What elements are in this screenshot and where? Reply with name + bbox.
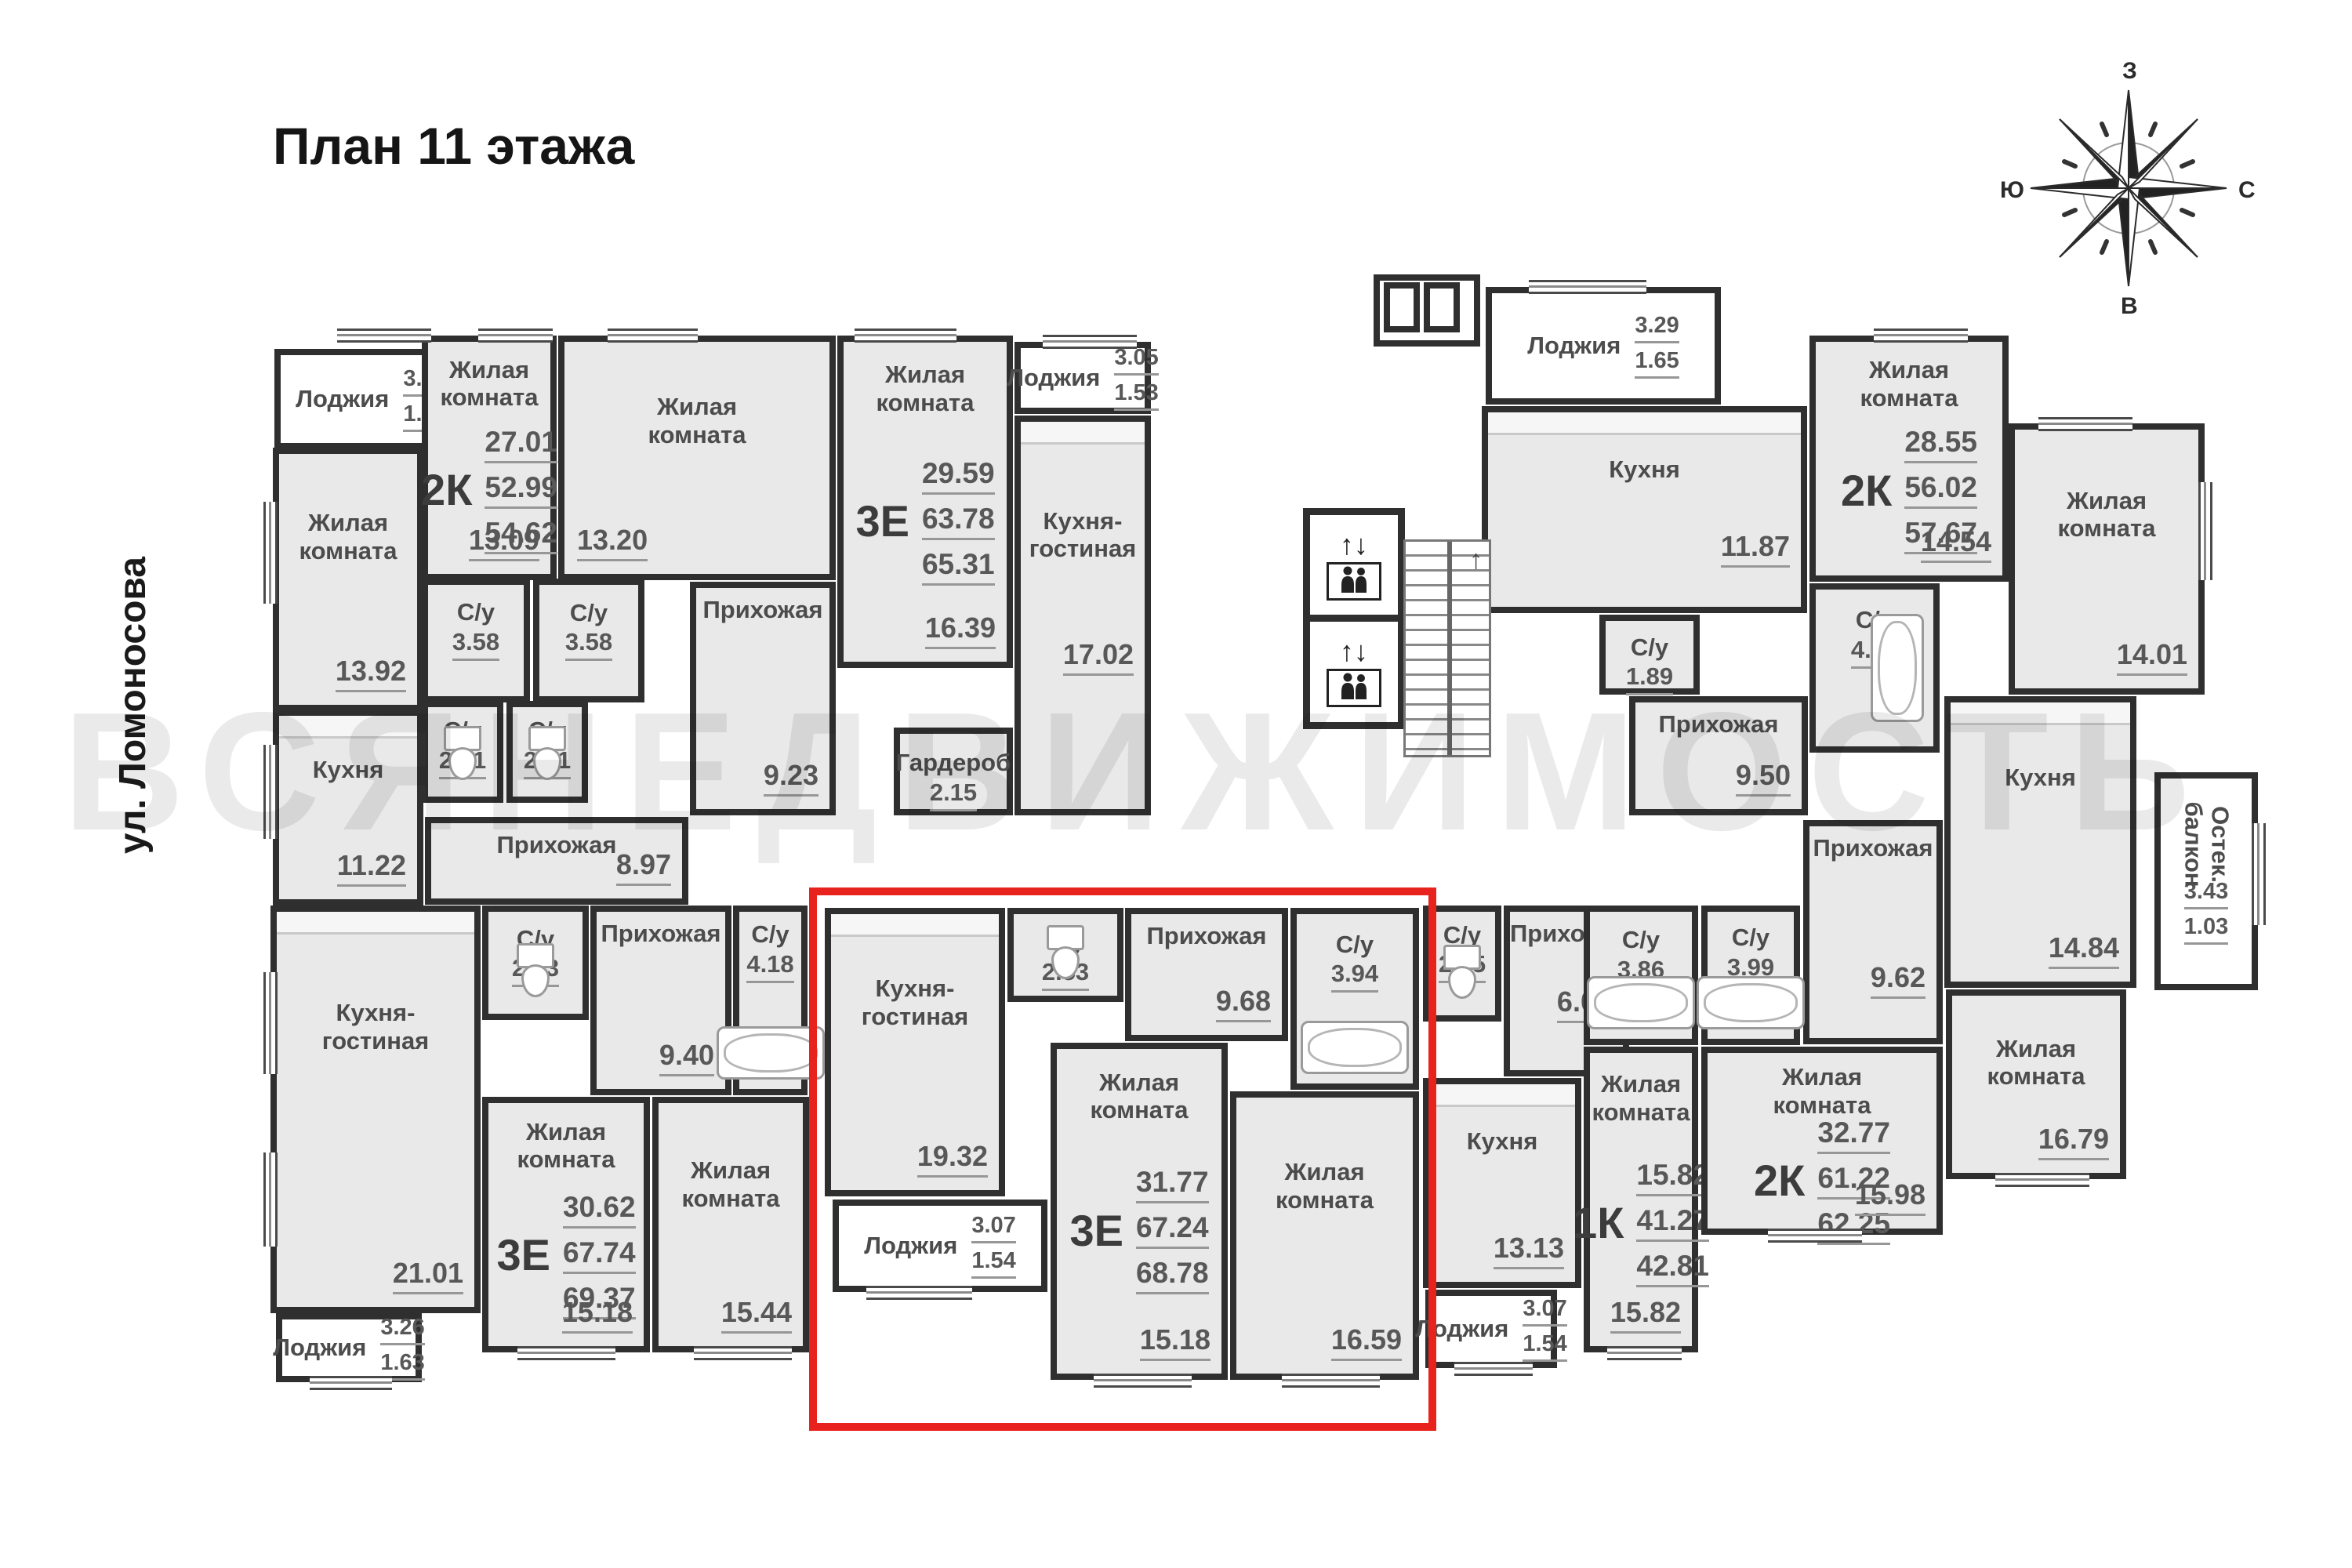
room-15-98-name: Жилая комната [1708,1063,1936,1119]
room-15-18-a-apartment-area-2: 67.74 [563,1236,636,1274]
kitchen-11-87-name: Кухня [1488,456,1801,484]
loggia-top-left-name: Лоджия [296,385,389,413]
loggia-3-29-label: Лоджия3.291.65 [1492,293,1715,398]
window-icon-h15 [1607,1346,1682,1360]
kitchen-11-87-area-value: 11.87 [1721,530,1790,568]
window-icon-h10 [694,1346,792,1360]
room-14-01-name: Жилая комната [2015,487,2198,543]
room-15-82-name: Жилая комната [1590,1070,1692,1126]
room-15-98-area-value: 15.98 [1855,1178,1926,1216]
room-15-82-area-value: 15.82 [1610,1296,1681,1334]
room-14-54: Жилая комната2К28.5556.0257.6714.54 [1809,336,2009,582]
su-3-99-bathtub-icon [1697,976,1805,1029]
su-1-89: С/у1.89 [1599,615,1700,695]
loggia-3-05-value-2: 1.53 [1114,380,1158,411]
su-2-53-a: С/у2.53 [482,906,589,1020]
kitchen-13-13-area-value: 13.13 [1494,1232,1564,1269]
compass-right-label: С [2238,177,2256,204]
room-16-39-name: Жилая комната [844,361,1007,416]
room-15-18-a-apartment-area-1: 30.62 [563,1191,636,1229]
hall-8-97: Прихожая8.97 [425,817,688,905]
kitchen-11-22: Кухня11.22 [273,710,423,906]
garderob-2-15: Гардероб2.15 [894,728,1013,815]
room-15-82-apartment-area-1: 15.82 [1636,1159,1709,1196]
room-16-79-area-value: 16.79 [2038,1123,2109,1160]
vent-2 [1424,282,1460,332]
balcony-ostek-name: Остек. балкон [2180,802,2233,887]
su-3-86-bathtub-icon [1587,976,1695,1029]
hall-9-40: Прихожая9.40 [590,906,731,1095]
elevator-2-people-icon [1327,669,1381,707]
su-2-21-b: С/у2.21 [506,701,588,803]
room-14-54-apartment-area-2: 56.02 [1904,471,1977,509]
room-15-44: Жилая комната15.44 [652,1097,809,1352]
su-3-58-b: С/у3.58 [533,579,644,702]
su-4-21: С/у4.21 [1809,583,1940,753]
su-2-21-b-toilet-icon [528,726,566,751]
kitchen-living-17-02-name: Кухня- гостиная [1021,507,1145,563]
window-icon-h1 [478,328,553,343]
room-14-54-name: Жилая комната [1816,356,2002,412]
kitchen-11-87: Кухня11.87 [1482,406,1807,613]
window-icon-h8 [310,1376,392,1390]
hall-9-23: Прихожая9.23 [690,582,836,815]
su-2-45-toilet-icon [1443,945,1481,970]
room-14-54-area-value: 14.54 [1921,525,1991,563]
loggia-3-05: Лоджия3.051.53 [1014,342,1151,414]
kitchen-14-84-name: Кухня [1951,764,2130,792]
window-icon-h7 [2038,417,2132,431]
garderob-2-15-area-value: 2.15 [930,779,977,811]
garderob-2-15-name: Гардероб [896,749,1011,777]
room-13-09-apartment-type: 2К [421,464,472,515]
hall-9-62-area-value: 9.62 [1871,961,1926,999]
room-15-98-apartment-type: 2К [1754,1155,1805,1206]
room-16-39: Жилая комната3Е29.5963.7865.3116.39 [837,336,1013,668]
room-16-39-apartment-area-1: 29.59 [922,457,995,495]
hall-8-97-area-value: 8.97 [616,848,671,886]
room-16-39-apartment-summary: 3Е29.5963.7865.31 [844,457,1007,586]
room-13-09-apartment-area-2: 52.99 [485,471,557,509]
room-13-20-name: Жилая комната [564,393,829,448]
loggia-3-07-1k-value-1: 3.07 [1523,1296,1566,1327]
room-14-01: Жилая комната14.01 [2009,423,2205,695]
room-15-98: Жилая комната2К32.7761.2262.2515.98 [1701,1047,1943,1235]
room-15-82-apartment-area-3: 42.81 [1636,1250,1709,1287]
hall-9-23-name: Прихожая [696,596,829,624]
loggia-3-05-label: Лоджия3.051.53 [1021,348,1145,408]
kitchen-13-13-kitchen-counter-icon [1429,1084,1575,1107]
kitchen-13-13-name: Кухня [1429,1127,1575,1156]
su-2-53-a-toilet-icon [517,943,554,968]
page-title: План 11 этажа [273,116,634,176]
compass-rose-icon: З С В Ю [2003,63,2254,314]
hall-9-40-area-value: 9.40 [659,1039,714,1076]
balcony-ostek-label: Остек. балкон3.431.03 [2161,779,2252,984]
kitchen-13-13: Кухня13.13 [1423,1078,1581,1288]
room-14-54-apartment-type: 2К [1841,465,1892,516]
elevator-1-people-icon [1327,562,1381,601]
hall-9-62-name: Прихожая [1809,834,1936,862]
compass-top-label: З [2122,58,2137,85]
loggia-3-05-value-1: 3.05 [1114,345,1158,376]
kitchen-14-84: Кухня14.84 [1944,696,2136,988]
room-13-20: Жилая комната13.20 [558,336,836,580]
hall-9-50-name: Прихожая [1635,710,1802,739]
su-4-18: С/у4.18 [733,906,808,1095]
elevator-1-arrows-icon: ↑↓ [1340,531,1368,559]
hall-9-50: Прихожая9.50 [1629,696,1808,815]
su-1-89-name: С/у [1631,633,1668,662]
room-13-20-area-value: 13.20 [577,524,648,561]
loggia-bottom-left-label: Лоджия3.261.63 [282,1319,416,1376]
room-16-39-area-value: 16.39 [925,612,996,649]
window-icon-h3 [855,328,956,343]
street-label: ул. Ломоносова [111,557,154,854]
kitchen-11-22-area-value: 11.22 [337,849,406,887]
su-2-21-a: С/у2.21 [422,701,503,803]
kitchen-living-17-02-kitchen-counter-icon [1021,422,1145,445]
kitchen-11-87-kitchen-counter-icon [1488,412,1801,435]
vent-1 [1384,282,1420,332]
su-3-58-b-name: С/у [570,599,608,627]
room-15-82-apartment-summary: 1К15.8241.2742.81 [1590,1159,1692,1287]
window-icon-h6 [1874,328,1968,343]
room-16-39-apartment-area-3: 65.31 [922,548,995,586]
staircase [1403,539,1491,757]
room-13-92-name: Жилая комната [279,509,417,564]
compass-star-icon [2003,63,2254,314]
elevator-2-arrows-icon: ↑↓ [1340,637,1368,666]
su-3-58-a-name: С/у [457,598,495,626]
room-15-82-apartment-area-2: 41.27 [1636,1204,1709,1242]
floor-plan: План 11 этажа ул. Ломоносова ВСЯНЕДВИЖИМ… [0,0,2352,1568]
room-16-39-apartment-areas: 29.5963.7865.31 [922,457,995,586]
room-15-44-name: Жилая комната [659,1156,803,1212]
elevator-1-icon: ↑↓ [1303,508,1405,622]
kitchen-11-22-kitchen-counter-icon [279,716,417,739]
su-3-58-b-area-value: 3.58 [565,628,612,661]
su-3-99-name: С/у [1732,924,1769,952]
su-4-18-bathtub-icon [717,1026,825,1080]
su-3-58-a: С/у3.58 [422,579,530,702]
room-15-18-a: Жилая комната3Е30.6267.7469.3715.18 [482,1097,650,1352]
kitchen-living-21-01: Кухня- гостиная21.01 [270,906,481,1313]
room-15-82: Жилая комната1К15.8241.2742.8115.82 [1584,1047,1698,1352]
room-14-54-apartment-area-1: 28.55 [1904,426,1977,463]
window-icon-h0 [337,328,431,343]
window-icon-v0 [263,502,278,604]
room-16-79-name: Жилая комната [1952,1035,2120,1091]
window-icon-h9 [517,1346,615,1360]
kitchen-living-17-02: Кухня- гостиная17.02 [1014,416,1151,815]
su-3-58-a-area-value: 3.58 [452,628,499,661]
room-13-09: Жилая комната2К27.0152.9954.6213.09 [422,336,557,580]
kitchen-living-17-02-area-value: 17.02 [1063,638,1134,676]
room-13-92: Жилая комната13.92 [273,448,423,711]
balcony-ostek: Остек. балкон3.431.03 [2154,772,2258,990]
window-icon-h5 [1529,280,1646,294]
window-icon-h2 [608,328,698,343]
window-icon-h4 [1043,335,1137,349]
loggia-bottom-left: Лоджия3.261.63 [276,1313,422,1382]
su-3-86-name: С/у [1622,926,1660,954]
loggia-bottom-left-name: Лоджия [273,1334,366,1362]
window-icon-h17 [1995,1173,2089,1187]
room-16-79: Жилая комната16.79 [1946,989,2126,1179]
window-icon-v4 [2198,482,2212,580]
su-1-89-area-value: 1.89 [1626,662,1673,695]
hall-9-23-area-value: 9.23 [764,759,818,797]
window-icon-v5 [2252,823,2266,925]
room-15-82-apartment-areas: 15.8241.2742.81 [1636,1159,1709,1287]
compass-bottom-label: В [2121,293,2138,320]
room-16-39-apartment-area-2: 63.78 [922,503,995,540]
room-13-09-apartment-area-1: 27.01 [485,426,557,463]
selected-apartment-highlight [809,887,1436,1431]
kitchen-living-21-01-area-value: 21.01 [393,1257,463,1294]
room-15-18-a-apartment-type: 3Е [496,1229,550,1280]
room-13-09-area-value: 13.09 [469,524,539,561]
loggia-bottom-left-values: 3.261.63 [380,1315,424,1381]
room-13-09-name: Жилая комната [428,356,550,412]
su-4-18-name: С/у [751,920,789,949]
window-icon-h14 [1454,1362,1533,1376]
room-15-44-area-value: 15.44 [721,1296,792,1334]
room-15-98-apartment-area-1: 32.77 [1817,1116,1890,1154]
hall-9-50-area-value: 9.50 [1736,759,1791,797]
loggia-3-29: Лоджия3.291.65 [1486,287,1721,405]
su-4-18-area-value: 4.18 [746,950,793,983]
kitchen-11-22-name: Кухня [279,756,417,784]
balcony-ostek-values: 3.431.03 [2184,879,2228,945]
compass-left-label: Ю [2000,177,2024,204]
loggia-3-07-1k-value-2: 1.54 [1523,1331,1566,1362]
kitchen-living-21-01-kitchen-counter-icon [277,912,474,935]
loggia-3-29-name: Лоджия [1527,332,1621,360]
su-3-86: С/у3.86 [1584,906,1698,1045]
room-15-18-a-name: Жилая комната [488,1118,644,1174]
balcony-ostek-value-2: 1.03 [2184,914,2228,945]
room-15-82-apartment-type: 1К [1573,1197,1624,1248]
loggia-bottom-left-value-1: 3.26 [380,1315,424,1345]
su-2-21-a-toilet-icon [444,726,481,751]
window-icon-h16 [1768,1229,1862,1243]
loggia-3-29-value-2: 1.65 [1635,348,1679,379]
kitchen-living-21-01-name: Кухня- гостиная [277,999,474,1054]
hall-9-40-name: Прихожая [597,920,725,948]
kitchen-14-84-kitchen-counter-icon [1951,702,2130,725]
hall-9-62: Прихожая9.62 [1803,820,1943,1044]
window-icon-v2 [263,972,278,1074]
room-16-39-apartment-type: 3Е [855,495,909,546]
room-14-01-area-value: 14.01 [2117,638,2187,676]
loggia-3-07-1k: Лоджия3.071.54 [1425,1290,1557,1368]
elevator-2-icon: ↑↓ [1303,615,1405,729]
kitchen-14-84-area-value: 14.84 [2049,931,2119,969]
loggia-3-07-1k-label: Лоджия3.071.54 [1432,1296,1551,1362]
loggia-3-07-1k-values: 3.071.54 [1523,1296,1566,1362]
room-13-92-area-value: 13.92 [336,655,406,692]
loggia-3-05-values: 3.051.53 [1114,345,1158,411]
su-4-21-bathtub-icon [1871,614,1924,722]
window-icon-v1 [263,745,278,839]
window-icon-v3 [263,1152,278,1247]
room-15-18-a-area-value: 15.18 [562,1296,633,1334]
loggia-3-29-value-1: 3.29 [1635,313,1679,343]
loggia-3-29-values: 3.291.65 [1635,313,1679,379]
loggia-3-05-name: Лоджия [1007,364,1100,392]
su-3-99: С/у3.99 [1701,906,1800,1045]
